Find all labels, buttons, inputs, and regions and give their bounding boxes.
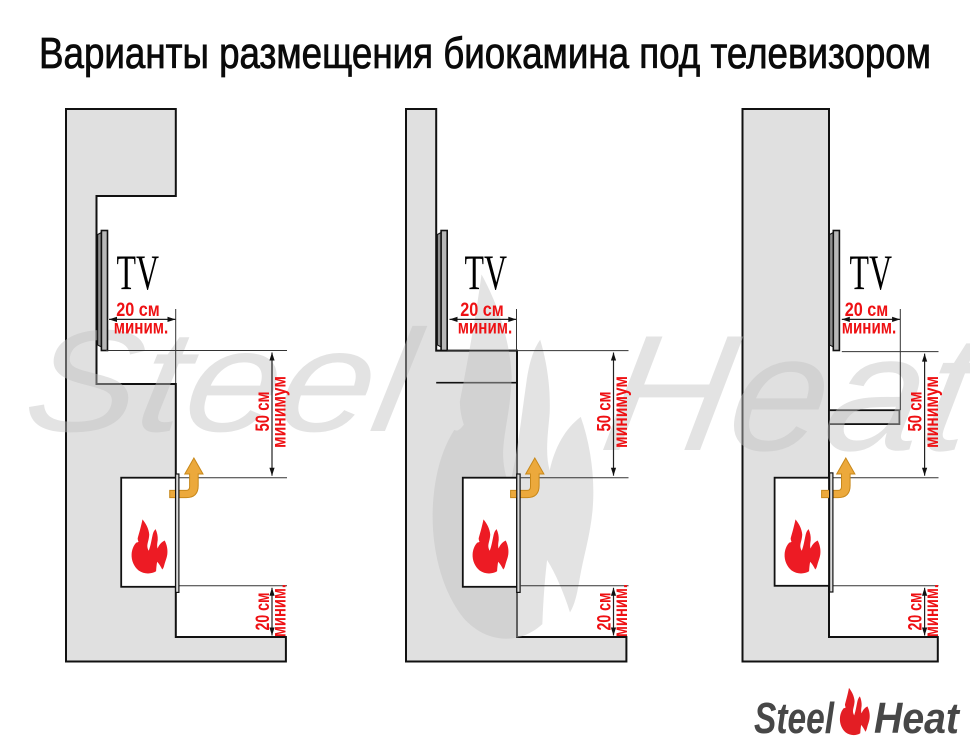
svg-text:миним.: миним. [270, 584, 291, 637]
svg-text:Steel: Steel [754, 694, 835, 743]
svg-text:миним.: миним. [922, 584, 943, 637]
svg-text:миним.: миним. [611, 584, 632, 637]
svg-text:TV: TV [850, 244, 893, 300]
svg-text:TV: TV [117, 244, 160, 300]
svg-text:TV: TV [465, 244, 508, 300]
svg-text:минимум: минимум [922, 376, 943, 448]
svg-text:Варианты размещения биокамина: Варианты размещения биокамина под телеви… [39, 30, 931, 78]
svg-text:миним.: миним. [114, 318, 169, 339]
svg-text:минимум: минимум [270, 376, 291, 448]
svg-text:минимум: минимум [611, 376, 632, 448]
svg-text:Heat: Heat [874, 694, 961, 743]
svg-text:миним.: миним. [458, 318, 513, 339]
svg-text:миним.: миним. [842, 318, 897, 339]
svg-text:Steel: Steel [15, 300, 433, 462]
